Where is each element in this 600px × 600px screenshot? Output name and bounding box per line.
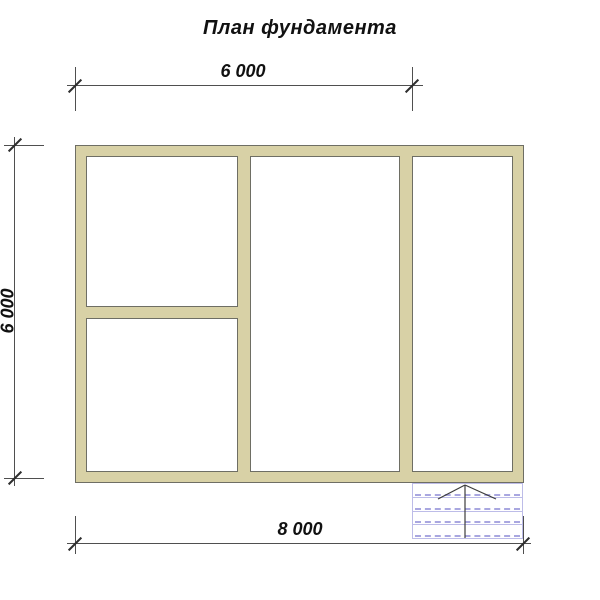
extension-line: [412, 67, 413, 111]
extension-line: [75, 67, 76, 111]
dimension-line: [67, 543, 531, 544]
extension-line: [4, 478, 44, 479]
drawing-title: План фундамента: [0, 17, 600, 40]
extension-line: [4, 145, 44, 146]
foundation-plan-drawing: План фундамента 6 000 6 000 8 000: [0, 0, 600, 600]
dimension-label-top: 6 000: [220, 61, 265, 82]
dimension-label-left: 6 000: [0, 288, 19, 333]
room-bottom-left: [86, 318, 238, 472]
extension-line: [75, 516, 76, 554]
entrance-direction-arrow: [412, 483, 523, 539]
room-right: [412, 156, 513, 472]
dimension-line: [67, 85, 423, 86]
room-middle: [250, 156, 400, 472]
extension-line: [523, 516, 524, 554]
room-top-left: [86, 156, 238, 307]
dimension-label-bottom: 8 000: [277, 519, 322, 540]
